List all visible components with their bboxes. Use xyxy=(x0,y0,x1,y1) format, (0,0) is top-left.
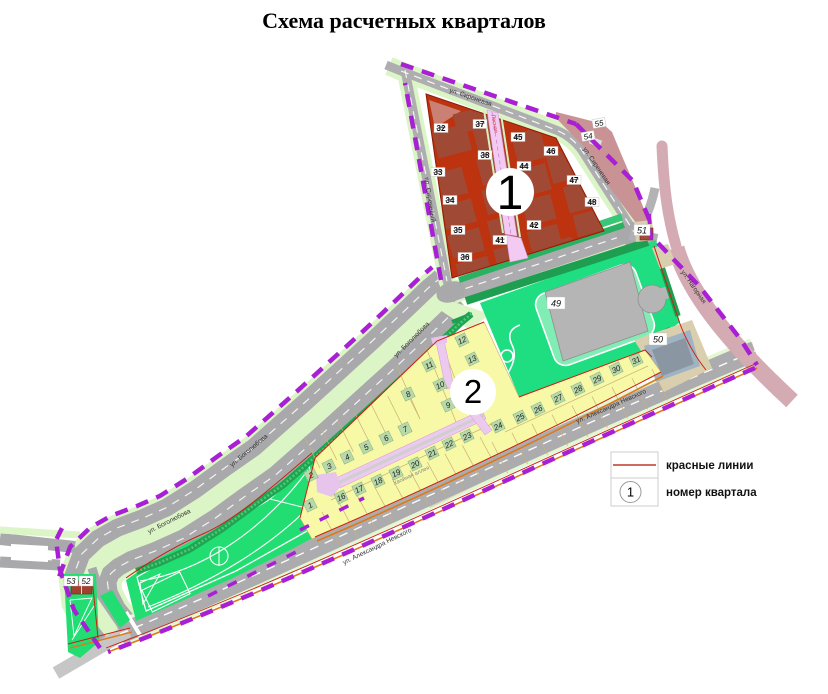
svg-text:49: 49 xyxy=(551,299,561,309)
svg-text:1: 1 xyxy=(497,167,524,220)
svg-text:50: 50 xyxy=(653,335,663,345)
svg-text:1: 1 xyxy=(627,485,634,500)
svg-text:51: 51 xyxy=(637,226,647,236)
svg-text:2: 2 xyxy=(464,373,482,410)
svg-text:52: 52 xyxy=(82,577,91,586)
svg-text:номер квартала: номер квартала xyxy=(666,487,757,499)
svg-text:53: 53 xyxy=(67,577,76,586)
svg-text:красные линии: красные линии xyxy=(666,460,753,472)
